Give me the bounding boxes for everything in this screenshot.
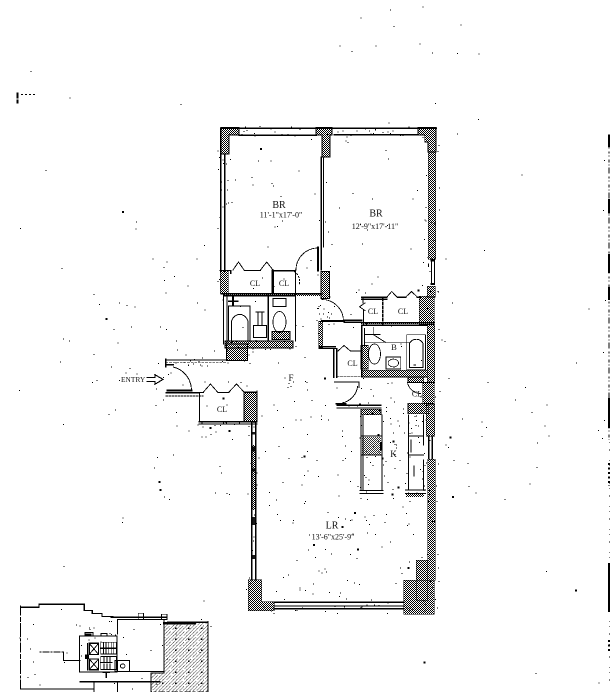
svg-text:CL: CL (279, 279, 289, 288)
svg-text:CL: CL (398, 307, 408, 316)
svg-text:CL: CL (412, 390, 422, 399)
svg-text:B: B (391, 342, 397, 352)
svg-text:CL: CL (217, 405, 227, 414)
svg-text:BR: BR (272, 200, 286, 211)
svg-text:F: F (288, 373, 293, 383)
svg-text:CL: CL (347, 359, 357, 368)
svg-text:CL: CL (250, 279, 260, 288)
svg-text:12'-9"x17'-11": 12'-9"x17'-11" (352, 222, 398, 231)
svg-text:13'-6"x25'-9": 13'-6"x25'-9" (312, 533, 355, 542)
svg-text:ENTRY: ENTRY (121, 375, 146, 384)
svg-text:BR: BR (369, 209, 383, 220)
svg-text:K: K (390, 449, 397, 459)
svg-text:LR: LR (326, 521, 339, 532)
svg-text:CL: CL (368, 307, 378, 316)
svg-text:11'-1"x17'-0": 11'-1"x17'-0" (260, 211, 302, 220)
